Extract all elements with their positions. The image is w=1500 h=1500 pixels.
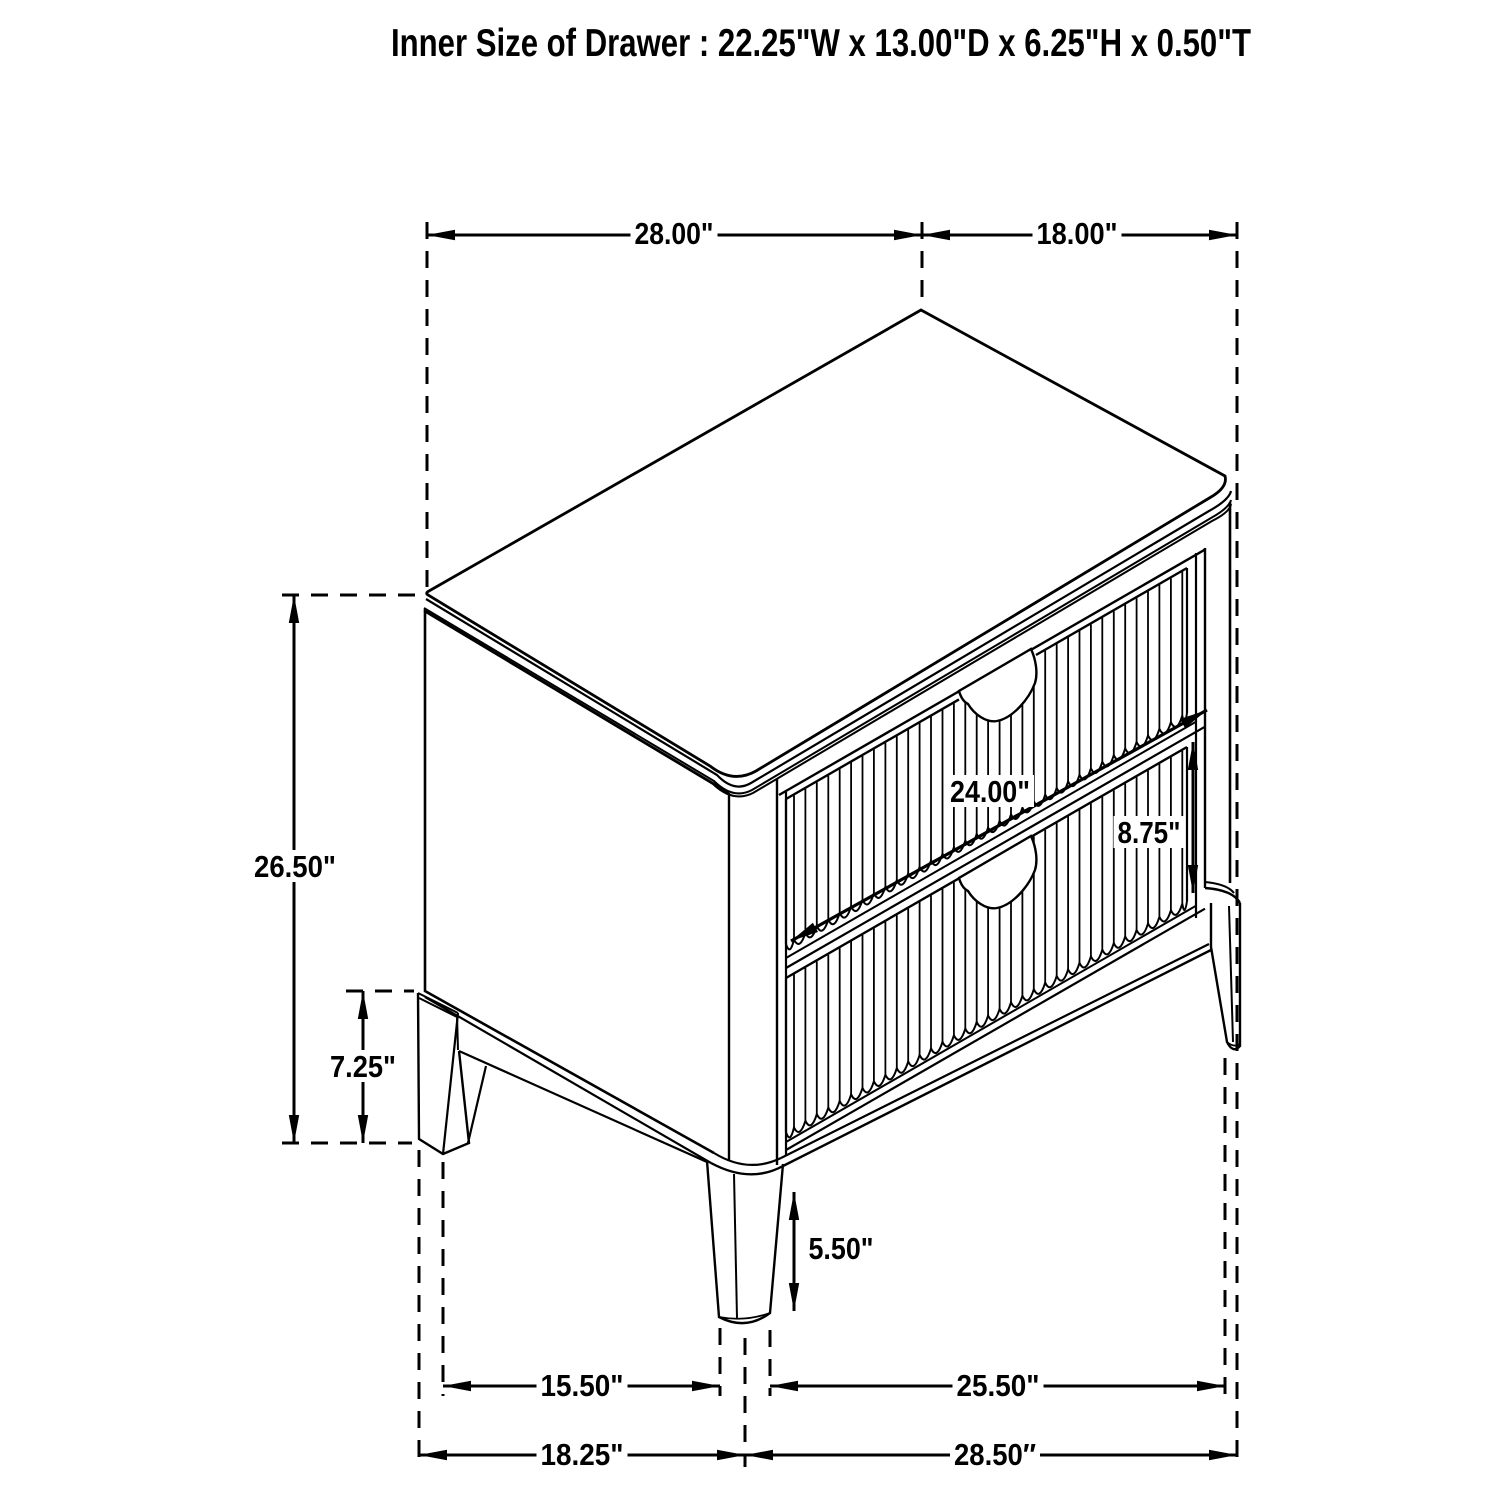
svg-text:28.00": 28.00" [635,216,714,251]
svg-text:8.75": 8.75" [1118,815,1181,850]
svg-text:18.25": 18.25" [541,1437,624,1472]
svg-text:15.50": 15.50" [541,1368,624,1403]
svg-text:Inner Size of Drawer : 22.25"W: Inner Size of Drawer : 22.25"W x 13.00"D… [391,22,1251,65]
svg-text:25.50": 25.50" [957,1368,1040,1403]
svg-text:26.50": 26.50" [254,849,336,884]
svg-text:28.50″: 28.50″ [954,1437,1036,1472]
svg-text:7.25": 7.25" [330,1049,396,1084]
svg-text:5.50": 5.50" [809,1231,874,1266]
svg-text:18.00": 18.00" [1037,216,1118,251]
svg-text:24.00": 24.00" [950,774,1030,809]
